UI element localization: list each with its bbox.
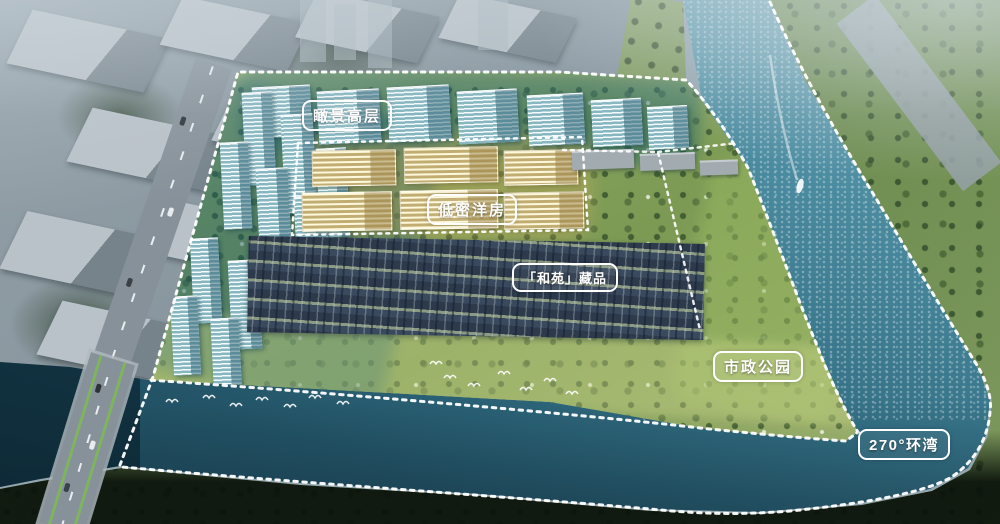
zone-label-collection: 「和苑」藏品 xyxy=(512,263,618,292)
boundary-overlay xyxy=(0,0,1000,524)
zone-label-lowrise: 低密洋房 xyxy=(427,194,517,225)
zone-label-park: 市政公园 xyxy=(713,351,803,382)
zone-label-highrise: 瞰景高层 xyxy=(302,100,392,131)
boat-icon xyxy=(770,55,805,194)
zone-label-bay: 270°环湾 xyxy=(858,429,950,460)
inner-boundary-line xyxy=(563,143,737,330)
birds-icon xyxy=(166,362,578,408)
aerial-render: 瞰景高层 低密洋房 「和苑」藏品 市政公园 270°环湾 xyxy=(0,0,1000,524)
